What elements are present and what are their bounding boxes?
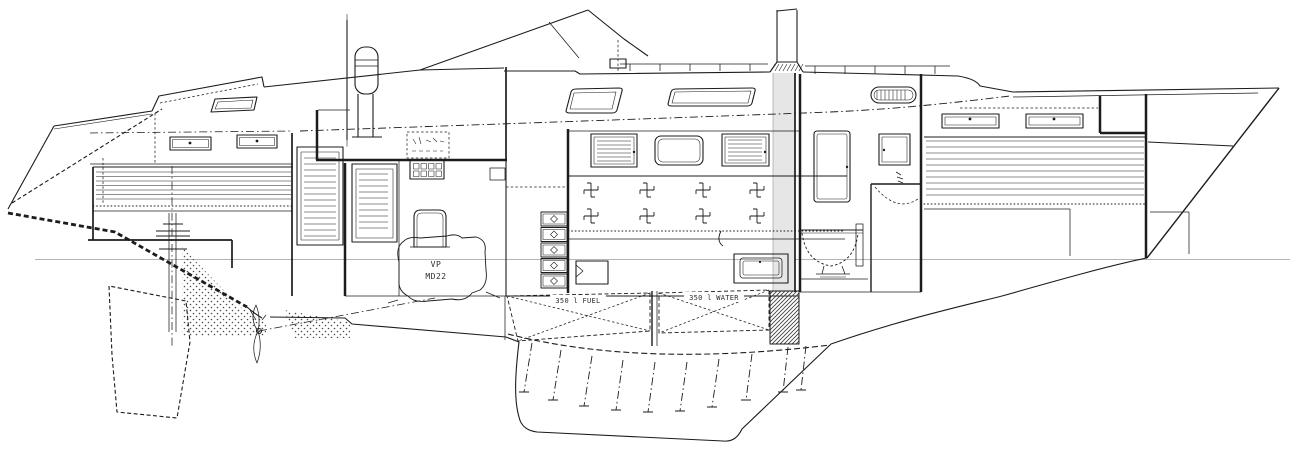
louvred-door [352, 164, 397, 242]
louvred-locker [591, 134, 637, 167]
instrument-panel [407, 132, 449, 158]
dorade-vent [871, 87, 916, 103]
louvred-door [297, 147, 343, 245]
settee-drawers [541, 212, 567, 288]
switch-panel [410, 160, 444, 179]
forecabin-portlight [1026, 114, 1083, 128]
aft-cabin-portlight [237, 135, 277, 148]
engine-access-door [410, 210, 450, 247]
engine-label-line1: VP [431, 260, 442, 269]
aft-berth-mattress [96, 172, 291, 199]
galley-bracket [490, 168, 505, 180]
forecabin-portlight [942, 114, 999, 128]
aft-cabin-portlight [170, 137, 211, 150]
mast-step-floor [770, 291, 799, 344]
rudder-quadrant [156, 224, 190, 249]
head-door [871, 172, 921, 292]
tanks-keel [505, 290, 830, 412]
keel-bolts [524, 343, 806, 412]
aft-deck-hatch [211, 97, 257, 112]
engine [398, 235, 487, 302]
reading-light-symbols [584, 183, 764, 223]
v-berth-mattress [926, 141, 1144, 195]
pedestal [355, 47, 378, 94]
bilge-dotted-areas [182, 247, 350, 338]
louvred-locker [722, 134, 769, 166]
engine-label-line2: MD22 [425, 272, 446, 281]
coachroof-windows [566, 59, 755, 113]
water-tank-label: 350 l WATER [689, 294, 739, 302]
rudder [109, 286, 190, 418]
cockpit-steering [316, 14, 507, 160]
hull-profile [8, 10, 1279, 441]
drawing-canvas: VP MD22 350 l FUEL 350 l WATER [0, 0, 1290, 454]
mirror-locker [814, 131, 850, 202]
yacht-profile-drawing: VP MD22 350 l FUEL 350 l WATER [0, 0, 1290, 454]
saloon-portlight [655, 136, 703, 165]
toilet [799, 224, 863, 277]
fuel-tank-label: 350 l FUEL [555, 297, 600, 305]
base-cabinet [576, 261, 608, 284]
head-cabinet [879, 134, 910, 165]
forward-cabin [924, 94, 1233, 258]
mast [770, 9, 803, 292]
labels: VP MD22 350 l FUEL 350 l WATER [425, 260, 744, 305]
